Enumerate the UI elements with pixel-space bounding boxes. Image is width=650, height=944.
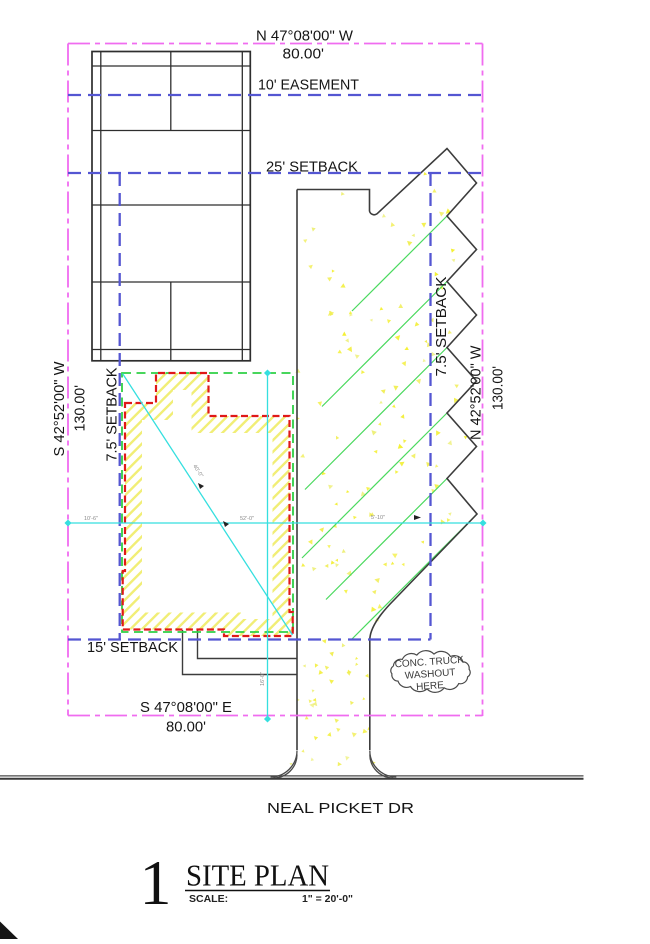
svg-text:10'-6": 10'-6" xyxy=(84,516,98,522)
svg-text:N 42°52'00" W: N 42°52'00" W xyxy=(469,345,485,440)
svg-text:15' SETBACK: 15' SETBACK xyxy=(87,640,178,656)
svg-text:80.00': 80.00' xyxy=(283,47,325,63)
svg-text:7.5' SETBACK: 7.5' SETBACK xyxy=(105,367,121,461)
svg-text:S 42°52'00" W: S 42°52'00" W xyxy=(52,361,68,456)
svg-text:130.00': 130.00' xyxy=(73,385,89,432)
svg-text:25' SETBACK: 25' SETBACK xyxy=(266,160,358,176)
svg-text:S 47°08'00" E: S 47°08'00" E xyxy=(140,700,232,716)
svg-text:5'-10": 5'-10" xyxy=(371,515,385,521)
svg-text:16'-0": 16'-0" xyxy=(260,672,266,686)
svg-text:SCALE:: SCALE: xyxy=(189,893,228,905)
svg-text:80.00': 80.00' xyxy=(166,720,206,736)
svg-text:N 47°08'00" W: N 47°08'00" W xyxy=(256,29,353,45)
svg-text:1: 1 xyxy=(140,847,172,918)
svg-text:52'-0": 52'-0" xyxy=(240,516,254,522)
svg-text:130.00': 130.00' xyxy=(491,366,507,410)
svg-text:NEAL PICKET DR: NEAL PICKET DR xyxy=(267,801,414,817)
svg-text:7.5' SETBACK: 7.5' SETBACK xyxy=(434,276,450,376)
svg-text:10' EASEMENT: 10' EASEMENT xyxy=(258,78,359,94)
svg-text:1" = 20'-0": 1" = 20'-0" xyxy=(302,893,353,905)
svg-text:SITE PLAN: SITE PLAN xyxy=(186,858,329,893)
svg-text:HERE: HERE xyxy=(416,680,445,693)
